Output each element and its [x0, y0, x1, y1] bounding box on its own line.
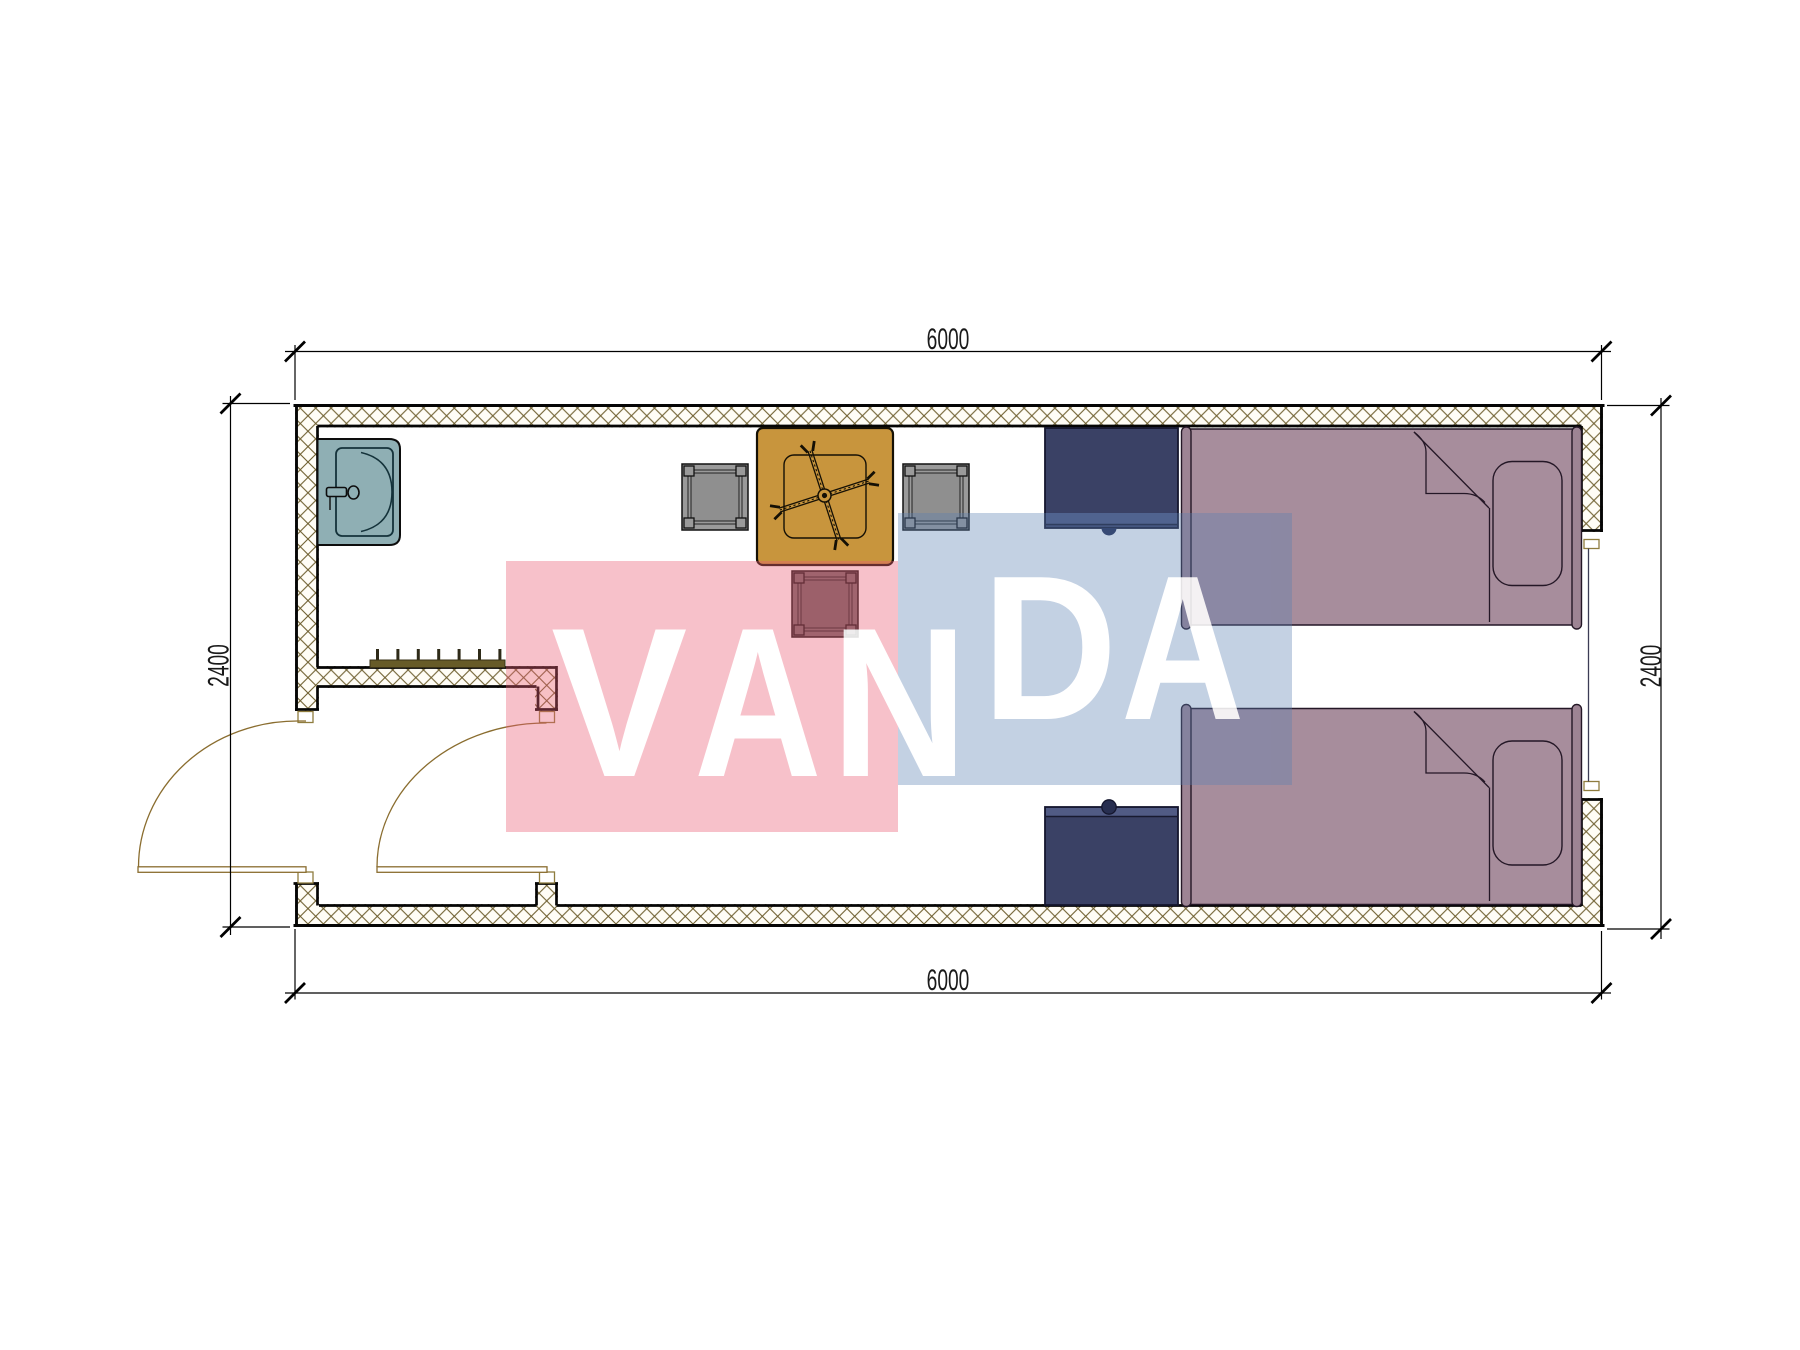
svg-text:2400: 2400 [202, 644, 235, 687]
svg-text:2400: 2400 [1635, 645, 1668, 688]
svg-text:D: D [982, 533, 1117, 763]
svg-text:6000: 6000 [927, 964, 970, 997]
svg-text:6000: 6000 [927, 323, 970, 356]
svg-text:V: V [551, 584, 687, 822]
svg-text:A: A [694, 584, 822, 821]
svg-text:A: A [1121, 534, 1244, 764]
svg-text:N: N [831, 584, 968, 822]
